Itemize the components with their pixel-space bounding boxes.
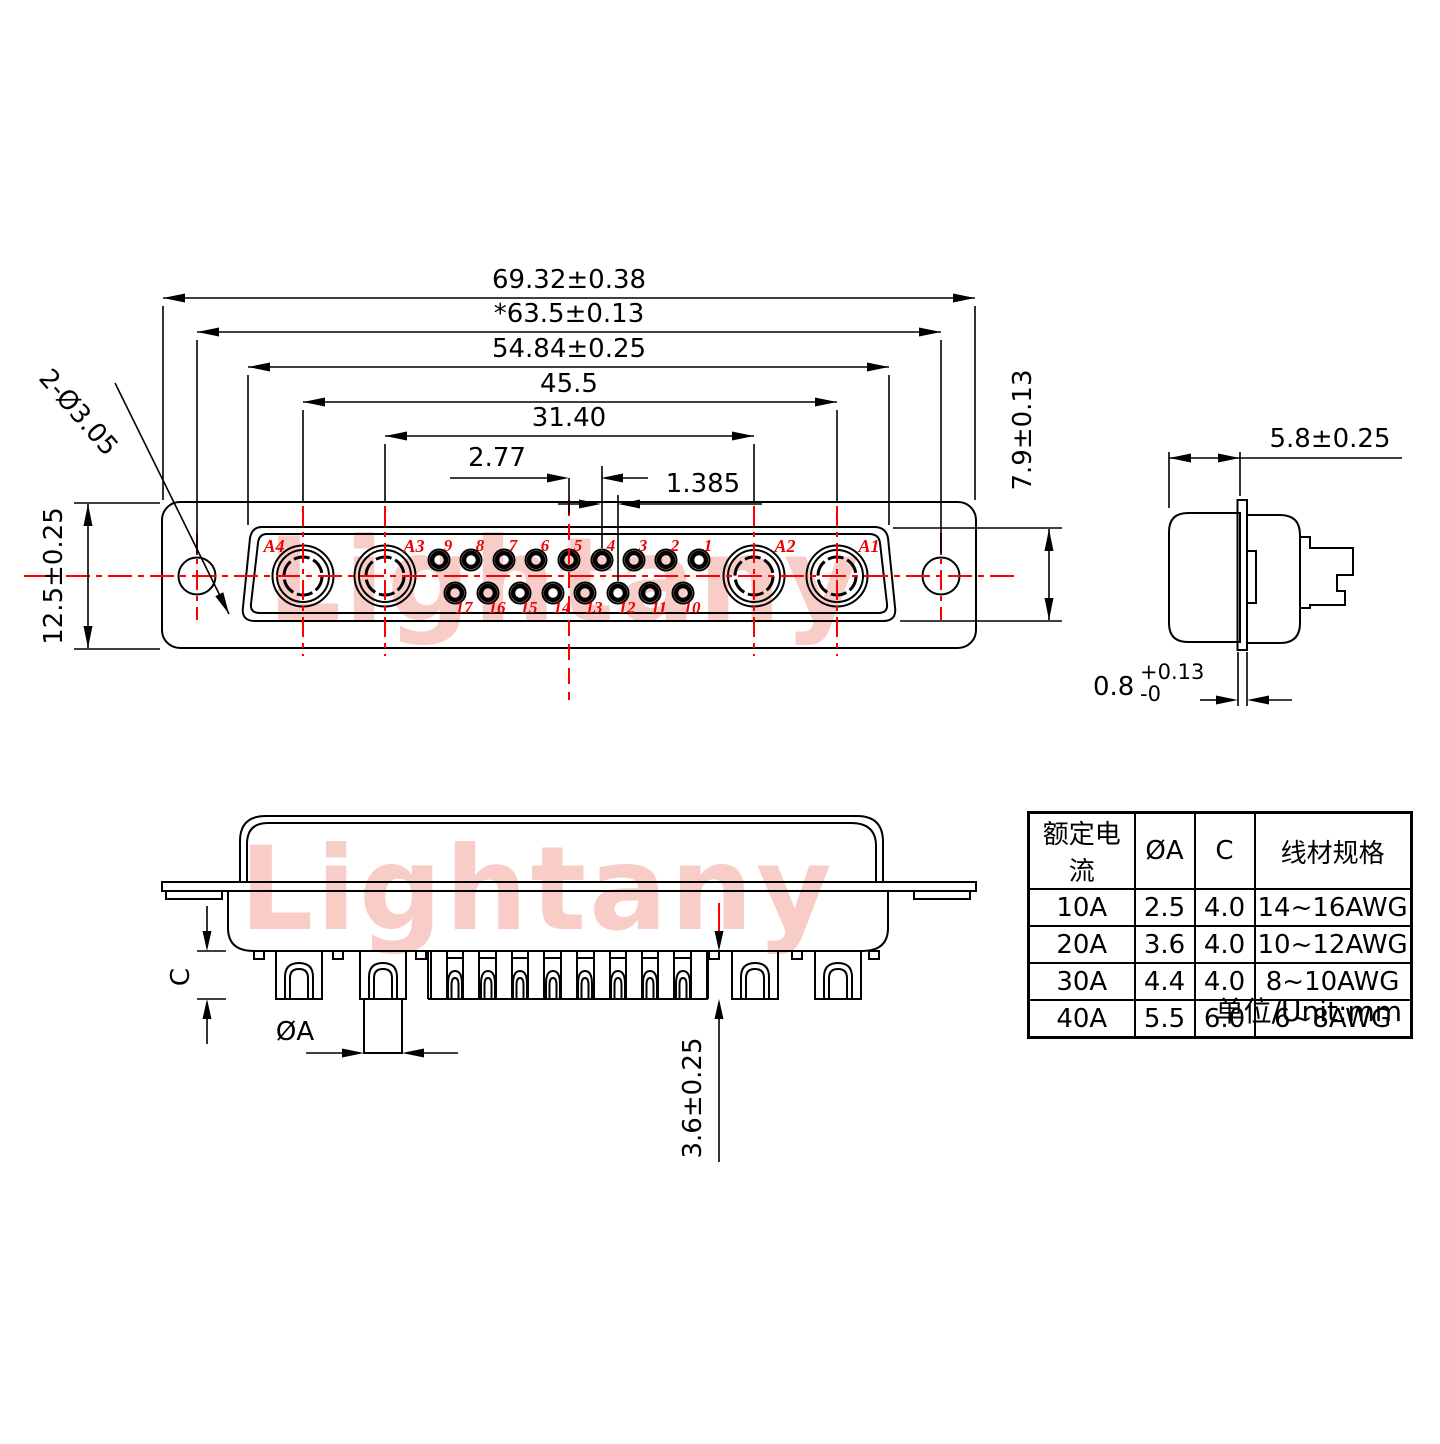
dim-mount-hole: 2-Ø3.05 bbox=[33, 364, 124, 462]
coax-cup-a2 bbox=[732, 951, 778, 999]
dim-standoff: 3.6±0.25 bbox=[678, 1037, 708, 1158]
pin-label: 3 bbox=[638, 536, 648, 555]
cell: 10~12AWG bbox=[1255, 926, 1412, 963]
pin-label: 12 bbox=[619, 598, 637, 617]
side-flange bbox=[1238, 500, 1248, 650]
pin-label: 11 bbox=[651, 598, 667, 617]
dim-pin-diameter: ØA bbox=[276, 1017, 314, 1047]
dim-overall-width: 69.32±0.38 bbox=[492, 265, 646, 295]
flange-pad-right bbox=[914, 891, 970, 899]
dim-shell-height: 7.9±0.13 bbox=[1008, 369, 1038, 490]
pin-label: 8 bbox=[476, 536, 485, 555]
cell: 4.0 bbox=[1195, 926, 1255, 963]
pin-label: 16 bbox=[489, 598, 507, 617]
flange-pad-left bbox=[166, 891, 222, 899]
dim-flange-tol-minus: -0 bbox=[1140, 682, 1161, 706]
engineering-drawing: Lightany Lightany bbox=[0, 0, 1440, 1440]
unit-note: 单位/Unit:mm bbox=[1100, 990, 1402, 1030]
dim-a-inner-spacing: 31.40 bbox=[532, 403, 606, 433]
dim-row-offset: 1.385 bbox=[666, 469, 740, 499]
coax-cup-a4 bbox=[276, 951, 322, 999]
coax-pin-barrel bbox=[364, 999, 402, 1053]
pin-label: 13 bbox=[586, 598, 604, 617]
col-header-wire-gauge: 线材规格 bbox=[1255, 813, 1412, 890]
contact-label-a3: A3 bbox=[402, 536, 424, 556]
pin-label: 9 bbox=[444, 536, 453, 555]
coax-cup-a3 bbox=[360, 951, 406, 999]
pin-label: 2 bbox=[670, 536, 680, 555]
pin-label: 5 bbox=[574, 536, 583, 555]
cell: 20A bbox=[1029, 926, 1135, 963]
dim-pin-pitch: 2.77 bbox=[468, 443, 526, 473]
side-rear-contact bbox=[1300, 537, 1353, 608]
col-header-c: C bbox=[1195, 813, 1255, 890]
dim-flange-thickness: 0.8 bbox=[1093, 672, 1134, 702]
dim-flange-height: 12.5±0.25 bbox=[39, 507, 69, 645]
pin-label: 6 bbox=[541, 536, 550, 555]
side-body bbox=[1247, 515, 1300, 643]
spec-row-10a: 10A 2.5 4.0 14~16AWG bbox=[1029, 889, 1412, 926]
dim-shell-width: 54.84±0.25 bbox=[492, 334, 646, 364]
side-view bbox=[1169, 500, 1353, 650]
contact-label-a4: A4 bbox=[262, 536, 284, 556]
watermark-text-bottom: Lightany bbox=[239, 822, 834, 957]
spec-table-header-row: 额定电流 ØA C 线材规格 bbox=[1029, 813, 1412, 890]
dim-a-outer-spacing: 45.5 bbox=[540, 369, 598, 399]
col-header-diameter-a: ØA bbox=[1135, 813, 1195, 890]
side-shell bbox=[1169, 513, 1240, 642]
dim-cup-depth: C bbox=[166, 968, 196, 986]
drawing-canvas: Lightany Lightany bbox=[0, 0, 1440, 1440]
pin-label: 4 bbox=[606, 536, 616, 555]
cell: 4.0 bbox=[1195, 889, 1255, 926]
dim-shell-depth: 5.8±0.25 bbox=[1269, 424, 1390, 454]
cell: 10A bbox=[1029, 889, 1135, 926]
contact-label-a1: A1 bbox=[857, 536, 879, 556]
dim-flange-tol-plus: +0.13 bbox=[1140, 660, 1204, 684]
pin-label: 17 bbox=[456, 598, 475, 617]
cell: 3.6 bbox=[1135, 926, 1195, 963]
pin-label: 15 bbox=[521, 598, 539, 617]
side-dimension-texts: 5.8±0.25 0.8 +0.13 -0 bbox=[1093, 424, 1391, 706]
coax-cup-a1 bbox=[815, 951, 861, 999]
cell: 14~16AWG bbox=[1255, 889, 1412, 926]
col-header-rated-current: 额定电流 bbox=[1029, 813, 1135, 890]
cell: 2.5 bbox=[1135, 889, 1195, 926]
spec-row-20a: 20A 3.6 4.0 10~12AWG bbox=[1029, 926, 1412, 963]
side-insert bbox=[1247, 551, 1256, 603]
pin-label: 10 bbox=[684, 598, 702, 617]
dim-hole-spacing: *63.5±0.13 bbox=[494, 299, 645, 329]
signal-pin-comb bbox=[428, 951, 708, 999]
pin-label: 1 bbox=[704, 536, 713, 555]
pin-label: 14 bbox=[554, 598, 571, 617]
contact-label-a2: A2 bbox=[773, 536, 795, 556]
